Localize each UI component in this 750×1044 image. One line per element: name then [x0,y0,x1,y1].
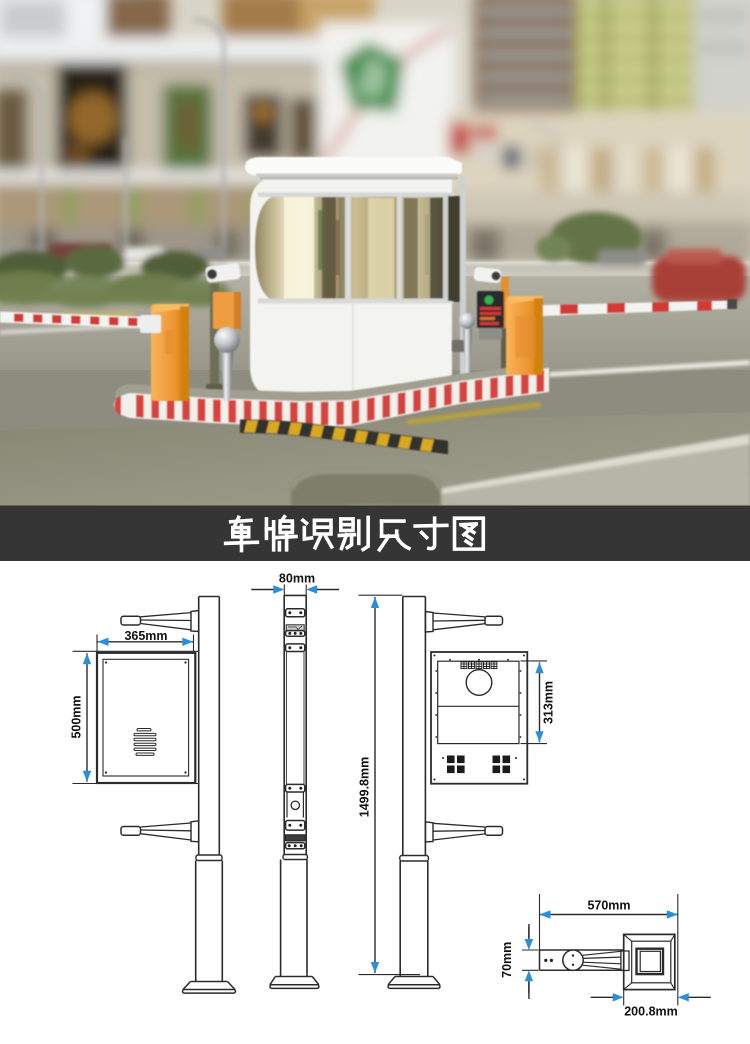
svg-text:313mm: 313mm [542,681,556,724]
svg-text:200.8mm: 200.8mm [624,1005,678,1019]
svg-text:365mm: 365mm [124,629,167,643]
svg-text:80mm: 80mm [279,572,315,586]
svg-text:70mm: 70mm [500,942,514,978]
svg-text:500mm: 500mm [70,695,84,738]
svg-text:1499.8mm: 1499.8mm [358,757,372,817]
svg-text:570mm: 570mm [587,899,630,913]
